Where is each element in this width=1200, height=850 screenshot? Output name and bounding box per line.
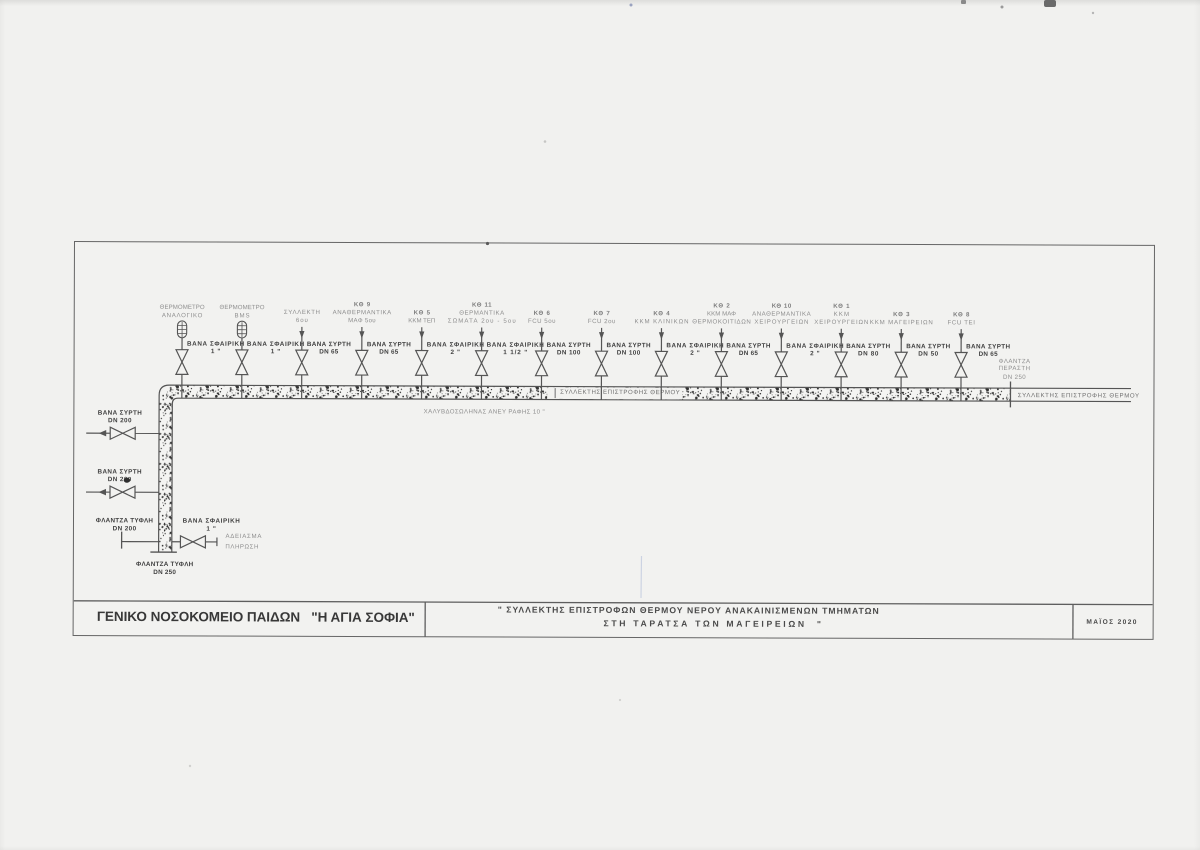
svg-text:ΒΑΝΑ ΣΦΑΙΡΙΚΗ: ΒΑΝΑ ΣΦΑΙΡΙΚΗ — [427, 341, 485, 348]
svg-text:ΘΕΡΜΑΝΤΙΚΑ: ΘΕΡΜΑΝΤΙΚΑ — [459, 309, 505, 316]
svg-text:DN 50: DN 50 — [918, 350, 939, 357]
svg-text:1 1/2 ": 1 1/2 " — [503, 349, 527, 356]
svg-text:FCU ΤΕΙ: FCU ΤΕΙ — [947, 319, 975, 326]
svg-text:ΑΝΑΘΕΡΜΑΝΤΙΚΑ: ΑΝΑΘΕΡΜΑΝΤΙΚΑ — [333, 309, 392, 316]
svg-text:ΒΑΝΑ ΣΦΑΙΡΙΚΗ: ΒΑΝΑ ΣΦΑΙΡΙΚΗ — [183, 517, 241, 524]
svg-text:ΚΘ 2: ΚΘ 2 — [713, 302, 730, 309]
svg-text:ΘΕΡΜΟΜΕΤΡΟ: ΘΕΡΜΟΜΕΤΡΟ — [160, 303, 205, 310]
svg-text:ΒΑΝΑ ΣΥΡΤΗ: ΒΑΝΑ ΣΥΡΤΗ — [906, 343, 950, 350]
svg-text:ΚΚΜ ΜΑΦ: ΚΚΜ ΜΑΦ — [707, 310, 736, 317]
svg-text:ΒΑΝΑ ΣΥΡΤΗ: ΒΑΝΑ ΣΥΡΤΗ — [367, 341, 411, 348]
svg-text:ΚΚΜ: ΚΚΜ — [834, 311, 850, 318]
svg-text:FCU 5ου: FCU 5ου — [528, 317, 556, 324]
svg-text:DN 250: DN 250 — [153, 569, 176, 576]
svg-text:ΒΑΝΑ ΣΦΑΙΡΙΚΗ: ΒΑΝΑ ΣΦΑΙΡΙΚΗ — [786, 342, 844, 349]
svg-text:" ΣΥΛΛΕΚΤΗΣ ΕΠΙΣΤΡΟΦΩΝ ΘΕΡΜΟΥ: " ΣΥΛΛΕΚΤΗΣ ΕΠΙΣΤΡΟΦΩΝ ΘΕΡΜΟΥ ΝΕΡΟΥ ΑΝΑΚ… — [498, 604, 879, 615]
svg-text:ΑΔΕΙΑΣΜΑ: ΑΔΕΙΑΣΜΑ — [225, 533, 262, 540]
svg-text:ΒΑΝΑ ΣΥΡΤΗ: ΒΑΝΑ ΣΥΡΤΗ — [547, 341, 591, 348]
svg-text:ΚΘ 9: ΚΘ 9 — [354, 301, 371, 308]
svg-text:ΚΚΜ ΚΛΙΝΙΚΩΝ: ΚΚΜ ΚΛΙΝΙΚΩΝ — [635, 318, 689, 325]
svg-text:DN 65: DN 65 — [739, 350, 759, 357]
svg-text:ΚΘ 6: ΚΘ 6 — [534, 309, 551, 316]
svg-text:DN 250: DN 250 — [1003, 373, 1026, 380]
svg-text:ΣΥΛΛΕΚΤΗΣ ΕΠΙΣΤΡΟΦΗΣ ΘΕΡΜΟΥ: ΣΥΛΛΕΚΤΗΣ ΕΠΙΣΤΡΟΦΗΣ ΘΕΡΜΟΥ — [1018, 392, 1139, 399]
svg-text:ΧΕΙΡΟΥΡΓΕΙΩΝ: ΧΕΙΡΟΥΡΓΕΙΩΝ — [754, 318, 808, 325]
svg-text:ΠΕΡΑΣΤΗ: ΠΕΡΑΣΤΗ — [999, 365, 1031, 372]
svg-text:ΚΘ 4: ΚΘ 4 — [653, 310, 670, 317]
svg-text:ΜΑΦ 5ου: ΜΑΦ 5ου — [348, 317, 376, 324]
svg-text:ΒΑΝΑ ΣΥΡΤΗ: ΒΑΝΑ ΣΥΡΤΗ — [98, 468, 142, 475]
svg-text:2 ": 2 " — [810, 350, 820, 357]
svg-text:ΒΑΝΑ ΣΥΡΤΗ: ΒΑΝΑ ΣΥΡΤΗ — [607, 342, 651, 349]
svg-text:ΚΘ 10: ΚΘ 10 — [772, 302, 792, 309]
svg-text:ΦΛΑΝΤΖΑ ΤΥΦΛΗ: ΦΛΑΝΤΖΑ ΤΥΦΛΗ — [96, 517, 154, 524]
svg-text:DN 65: DN 65 — [979, 350, 999, 357]
svg-text:ΚΘ 5: ΚΘ 5 — [414, 309, 431, 316]
svg-text:DN 200: DN 200 — [108, 417, 132, 424]
svg-text:2 ": 2 " — [451, 349, 461, 356]
svg-text:ΑΝΑΘΕΡΜΑΝΤΙΚΑ: ΑΝΑΘΕΡΜΑΝΤΙΚΑ — [752, 310, 811, 317]
svg-text:ΒΑΝΑ ΣΦΑΙΡΙΚΗ: ΒΑΝΑ ΣΦΑΙΡΙΚΗ — [247, 340, 305, 347]
svg-text:6ου: 6ου — [296, 317, 309, 324]
svg-text:ΜΑΪΟΣ 2020: ΜΑΪΟΣ 2020 — [1086, 617, 1136, 625]
svg-text:2 ": 2 " — [690, 349, 700, 356]
svg-text:ΒΑΝΑ ΣΥΡΤΗ: ΒΑΝΑ ΣΥΡΤΗ — [726, 342, 770, 349]
svg-text:ΦΛΑΝΤΖΑ ΤΥΦΛΗ: ΦΛΑΝΤΖΑ ΤΥΦΛΗ — [136, 561, 194, 568]
svg-text:DN 200: DN 200 — [113, 525, 137, 532]
svg-text:ΦΛΑΝΤΖΑ: ΦΛΑΝΤΖΑ — [999, 358, 1031, 365]
svg-text:ΣΥΛΛΕΚΤΗ: ΣΥΛΛΕΚΤΗ — [284, 309, 320, 316]
svg-text:ΠΛΗΡΩΣΗ: ΠΛΗΡΩΣΗ — [225, 543, 258, 550]
svg-text:ΚΘ 1: ΚΘ 1 — [833, 303, 850, 310]
svg-text:1 ": 1 " — [206, 525, 216, 532]
svg-text:DN 65: DN 65 — [319, 348, 339, 355]
svg-text:ΚΘ 8: ΚΘ 8 — [953, 311, 970, 318]
svg-text:BMS: BMS — [235, 312, 250, 319]
svg-text:DN 100: DN 100 — [557, 349, 581, 356]
svg-text:ΒΑΝΑ ΣΦΑΙΡΙΚΗ: ΒΑΝΑ ΣΦΑΙΡΙΚΗ — [666, 342, 724, 349]
svg-text:DN 100: DN 100 — [617, 349, 641, 356]
svg-text:ΣΤΗ ΤΑΡΑΤΣΑ ΤΩΝ ΜΑΓΕΙΡΕΙΩΝ ": ΣΤΗ ΤΑΡΑΤΣΑ ΤΩΝ ΜΑΓΕΙΡΕΙΩΝ " — [604, 618, 822, 629]
svg-text:ΧΑΛΥΒΔΟΣΩΛΗΝΑΣ ΑΝΕΥ ΡΑΦΗΣ 10 ": ΧΑΛΥΒΔΟΣΩΛΗΝΑΣ ΑΝΕΥ ΡΑΦΗΣ 10 " — [424, 408, 545, 415]
svg-text:DN 65: DN 65 — [379, 348, 399, 355]
svg-text:ΒΑΝΑ ΣΥΡΤΗ: ΒΑΝΑ ΣΥΡΤΗ — [307, 341, 351, 348]
svg-text:1 ": 1 " — [271, 348, 281, 355]
svg-text:1 ": 1 " — [211, 348, 221, 355]
svg-text:ΘΕΡΜΟΚΟΙΤΙΔΩΝ: ΘΕΡΜΟΚΟΙΤΙΔΩΝ — [692, 318, 751, 325]
svg-text:ΒΑΝΑ ΣΥΡΤΗ: ΒΑΝΑ ΣΥΡΤΗ — [966, 343, 1010, 350]
svg-text:ΚΘ 11: ΚΘ 11 — [472, 301, 492, 308]
svg-text:ΚΚΜ ΤΕΠ: ΚΚΜ ΤΕΠ — [408, 317, 435, 324]
svg-text:FCU 2ου: FCU 2ου — [588, 318, 616, 325]
svg-text:ΒΑΝΑ ΣΥΡΤΗ: ΒΑΝΑ ΣΥΡΤΗ — [846, 343, 890, 350]
svg-text:ΧΕΙΡΟΥΡΓΕΙΩΝ: ΧΕΙΡΟΥΡΓΕΙΩΝ — [814, 318, 868, 325]
svg-text:ΒΑΝΑ ΣΥΡΤΗ: ΒΑΝΑ ΣΥΡΤΗ — [98, 409, 142, 416]
svg-text:ΚΘ 3: ΚΘ 3 — [893, 311, 910, 318]
svg-text:ΚΚΜ ΜΑΓΕΙΡΕΙΩΝ: ΚΚΜ ΜΑΓΕΙΡΕΙΩΝ — [870, 319, 933, 326]
svg-text:DN 80: DN 80 — [858, 350, 879, 357]
svg-text:ΘΕΡΜΟΜΕΤΡΟ: ΘΕΡΜΟΜΕΤΡΟ — [220, 304, 265, 311]
svg-text:ΚΘ 7: ΚΘ 7 — [593, 310, 610, 317]
svg-text:ΒΑΝΑ ΣΦΑΙΡΙΚΗ: ΒΑΝΑ ΣΦΑΙΡΙΚΗ — [187, 340, 245, 347]
svg-text:ΓΕΝΙΚΟ ΝΟΣΟΚΟΜΕΙΟ ΠΑΙΔΩΝ "Η: ΓΕΝΙΚΟ ΝΟΣΟΚΟΜΕΙΟ ΠΑΙΔΩΝ "Η ΑΓΙΑ ΣΟΦΙΑ" — [97, 608, 415, 624]
svg-text:ΒΑΝΑ ΣΦΑΙΡΙΚΗ: ΒΑΝΑ ΣΦΑΙΡΙΚΗ — [487, 341, 545, 348]
svg-text:ΣΩΜΑΤΑ 2ου - 5ου: ΣΩΜΑΤΑ 2ου - 5ου — [448, 317, 517, 324]
svg-text:ΑΝΑΛΟΓΙΚΟ: ΑΝΑΛΟΓΙΚΟ — [162, 312, 203, 319]
